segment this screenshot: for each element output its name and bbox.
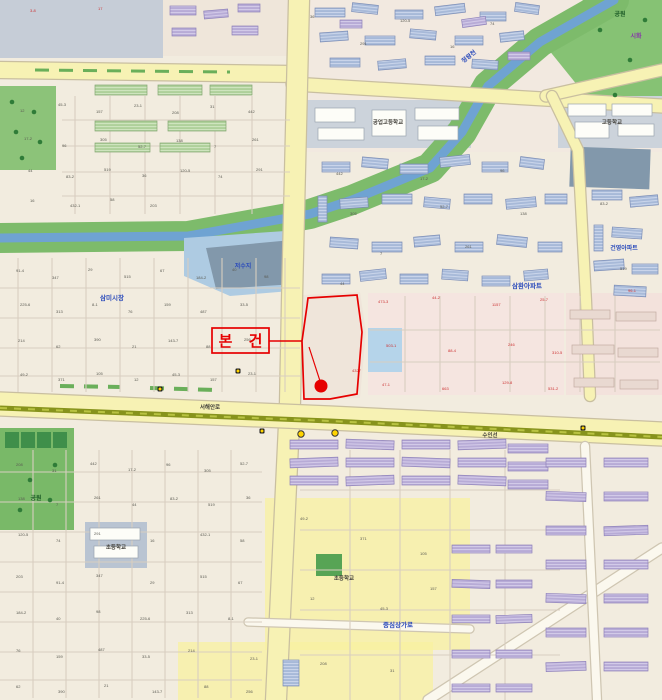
building-p <box>452 615 490 623</box>
place-label: 고등학교 <box>602 118 622 126</box>
parcel-number: 12 <box>134 377 139 382</box>
parcel-number: 225-6 <box>20 302 31 307</box>
parcel-number-red: 17 <box>98 6 103 11</box>
building-b <box>400 164 428 174</box>
parcel-number-red: 4327 <box>352 368 362 373</box>
building-p <box>340 20 362 28</box>
building-p <box>604 492 648 501</box>
tree-icon <box>14 130 19 135</box>
tree-icon <box>10 100 15 105</box>
parcel-number: 88 <box>204 684 209 689</box>
building-p <box>290 457 338 468</box>
parcel-number: 58 <box>110 197 115 202</box>
parcel-number: 12 <box>20 108 25 113</box>
parcel-number: 36 <box>246 495 251 500</box>
parcel-number: 143-7 <box>152 689 163 694</box>
building-w <box>318 128 364 140</box>
parcel-number: 74 <box>218 174 223 179</box>
building-p <box>546 491 586 501</box>
parcel-number: 45-3 <box>172 372 181 377</box>
parcel-number: 390 <box>94 337 101 342</box>
building-p <box>604 594 648 603</box>
parcel-number-red: 473-3 <box>378 299 389 304</box>
parcel-number: 44 <box>340 281 345 286</box>
parcel-number: 442 <box>248 109 255 114</box>
parcel-number: 44 <box>28 168 33 173</box>
building-b <box>382 194 412 204</box>
parcel-number: 143-7 <box>168 338 179 343</box>
parcel-number: 371 <box>360 536 367 541</box>
tree-icon <box>18 508 23 513</box>
parcel-number-red: 531-2 <box>548 386 559 391</box>
parcel-number-red: 96-1 <box>628 288 637 293</box>
building-p <box>496 580 532 588</box>
parcel-number: 83-2 <box>600 201 609 206</box>
parcel-number: 62 <box>56 344 61 349</box>
building-p <box>172 28 196 36</box>
tree-icon <box>628 58 633 63</box>
median-strip <box>60 386 120 387</box>
parcel-number: 74 <box>490 21 495 26</box>
tree-icon <box>613 93 618 98</box>
tree-icon <box>598 28 603 33</box>
parcel-number: 105 <box>96 371 103 376</box>
parcel-number: 120-5 <box>18 532 29 537</box>
parcel-number: 261 <box>94 495 101 500</box>
parcel-number: 49-2 <box>20 372 29 377</box>
parcel-number: 45-3 <box>380 606 389 611</box>
building-p <box>458 475 506 486</box>
building-p <box>496 545 532 553</box>
building-p <box>452 545 490 553</box>
place-label: 초등학교 <box>334 574 354 582</box>
parcel-number: 313 <box>56 309 63 314</box>
building-b <box>365 36 395 45</box>
building-p <box>290 440 338 449</box>
building-b <box>594 225 603 251</box>
parcel-number: 52-7 <box>240 461 249 466</box>
parcel-number: 83-2 <box>66 174 75 179</box>
parcel-number-red: 129-8 <box>502 380 513 385</box>
parcel-number: 519 <box>208 502 215 507</box>
parcel-number: 487 <box>200 309 207 314</box>
parcel-number: 23-1 <box>250 656 259 661</box>
parcel-number: 105 <box>420 551 427 556</box>
building-w <box>315 108 355 122</box>
parcel-number-red: 246 <box>508 342 515 347</box>
building-b <box>318 196 327 222</box>
parcel-number: 487 <box>98 647 105 652</box>
parcel-number: 261 <box>465 244 472 249</box>
building-b <box>632 264 658 274</box>
building-b <box>414 235 441 247</box>
building-p <box>604 560 648 569</box>
building-g <box>95 121 157 131</box>
building-p <box>346 439 394 450</box>
parcel-number: 16 <box>450 44 455 49</box>
place-label: 삼미시장 <box>100 293 124 302</box>
building-p <box>238 4 260 12</box>
parcel-number: 371 <box>58 377 65 382</box>
parcel-number-red: 88-4 <box>448 348 457 353</box>
parcel-number: 16 <box>30 198 35 203</box>
building-p <box>604 662 648 671</box>
parcel-number: 291 <box>94 531 101 536</box>
pool <box>368 328 402 372</box>
parcel-number: 203 <box>16 574 23 579</box>
tree-icon <box>28 478 33 483</box>
parcel-number: 17-2 <box>420 176 429 181</box>
parcel-number-red: 25-7 <box>540 297 549 302</box>
parcel-number: 17-2 <box>128 467 137 472</box>
tennis-court <box>21 432 35 448</box>
traffic-light-icon <box>237 370 240 373</box>
tree-icon <box>53 463 58 468</box>
building-w <box>612 104 652 116</box>
building-g <box>168 121 226 131</box>
building-w <box>418 126 458 140</box>
building-r <box>616 312 656 321</box>
building-p <box>604 525 648 536</box>
building-p <box>458 439 506 450</box>
parcel-number: 208 <box>320 661 327 666</box>
traffic-light-icon <box>159 388 162 391</box>
parcel-number: 214 <box>18 338 25 343</box>
signal-icon <box>332 430 338 436</box>
parcel-number: 31 <box>210 104 215 109</box>
parcel-number: 519 <box>104 167 111 172</box>
building-r <box>572 345 614 354</box>
tennis-court <box>5 432 19 448</box>
building-b <box>330 237 359 249</box>
building-b <box>400 274 428 284</box>
parcel-number: 96 <box>62 143 67 148</box>
parcel-number: 184-2 <box>16 610 27 615</box>
building-p <box>508 480 548 489</box>
parcel-number: 23-1 <box>134 103 143 108</box>
parcel-number: 305 <box>350 211 357 216</box>
building-p <box>452 650 490 658</box>
building-b <box>455 36 483 45</box>
parcel-number: 40 <box>56 616 61 621</box>
parcel-number: 49-2 <box>300 516 309 521</box>
parcel-number-red: 44-2 <box>432 295 441 300</box>
building-b <box>362 157 389 169</box>
parcel-number: 159 <box>164 302 171 307</box>
parcel-number: 138 <box>18 496 25 501</box>
parcel-number: 33-5 <box>240 302 249 307</box>
parcel-number: 29 <box>88 267 93 272</box>
parcel-number: 88 <box>206 344 211 349</box>
building-p <box>508 462 548 471</box>
signal-icon <box>298 431 304 437</box>
building-b <box>330 58 360 67</box>
parcel-number: 52-7 <box>440 204 449 209</box>
building-p <box>604 458 648 467</box>
building-g <box>95 85 147 95</box>
parcel-number: 12 <box>310 596 315 601</box>
parcel-number: 214 <box>188 648 195 653</box>
building-p <box>546 593 586 603</box>
park-left <box>0 86 56 170</box>
building-p <box>346 458 394 467</box>
parcel-number: 256 <box>246 689 253 694</box>
building-b <box>283 660 299 686</box>
building-w <box>618 124 654 136</box>
parcel-number-red: 503-1 <box>386 343 397 348</box>
parcel-number: 432-1 <box>200 532 211 537</box>
building-b <box>315 8 345 17</box>
parcel-number: 157 <box>96 109 103 114</box>
building-p <box>604 628 648 637</box>
building-p <box>346 475 394 486</box>
building-b <box>464 194 492 204</box>
building-p <box>170 6 196 15</box>
place-label: 공원 <box>614 10 625 18</box>
parcel-number: 203 <box>150 203 157 208</box>
tree-icon <box>643 18 648 23</box>
parcel-number: 16 <box>150 538 155 543</box>
parcel-number: 519 <box>620 266 627 271</box>
building-p <box>546 661 586 671</box>
parcel-number: 8-1 <box>92 302 99 307</box>
building-b <box>612 227 643 239</box>
place-label: 중심상가로 <box>383 620 413 629</box>
parcel-number: 515 <box>200 574 207 579</box>
place-label: 건영아파트 <box>610 244 638 252</box>
parcel-number: 29 <box>150 580 155 585</box>
parcel-number: 31 <box>52 468 57 473</box>
building-b <box>506 197 537 210</box>
parcel-number: 91-4 <box>16 268 25 273</box>
parcel-number: 96 <box>500 168 505 173</box>
parcel-number-red: 663 <box>442 386 449 391</box>
parcel-number-red: 1157 <box>492 302 501 307</box>
parcel-number: 291 <box>256 167 263 172</box>
subject-point-marker <box>315 380 328 393</box>
building-p <box>496 614 532 623</box>
building-b <box>524 269 549 281</box>
parcel-number: 21 <box>132 344 137 349</box>
parcel-number-red: 310-5 <box>552 350 563 355</box>
building-p <box>546 628 586 637</box>
building-b <box>538 242 562 252</box>
parcel-number: 313 <box>186 610 193 615</box>
tree-icon <box>20 156 25 161</box>
parcel-number: 36 <box>142 173 147 178</box>
building-b <box>372 242 402 252</box>
parcel-number: 442 <box>90 461 97 466</box>
parcel-number: 45-3 <box>58 102 67 107</box>
subject-block <box>303 292 366 400</box>
parcel-number: 52-7 <box>138 144 147 149</box>
building-b <box>592 190 622 200</box>
traffic-light-icon <box>261 430 264 433</box>
subject-label-text: 본 건 <box>219 333 269 350</box>
building-p <box>546 458 586 467</box>
parcel-number: 67 <box>238 580 243 585</box>
parcel-number-red: 3-8 <box>30 8 37 13</box>
place-label: 서해안로 <box>200 403 220 411</box>
tennis-court <box>53 432 67 448</box>
building-p <box>508 52 530 60</box>
building-p <box>232 26 258 35</box>
building-r <box>620 380 658 389</box>
building-p <box>546 560 586 569</box>
parcel-number: 184-2 <box>196 275 207 280</box>
building-b <box>545 194 567 204</box>
building-p <box>402 440 450 449</box>
building-p <box>496 650 532 658</box>
building-p <box>402 457 450 468</box>
parcel-number: 31 <box>390 668 395 673</box>
building-r <box>570 310 610 319</box>
parcel-number: 23-1 <box>248 371 257 376</box>
parcel-number: 83-2 <box>170 496 179 501</box>
parcel-number: 390 <box>58 689 65 694</box>
parcel-number-red: 47-1 <box>382 382 391 387</box>
building-b <box>320 31 349 42</box>
tree-icon <box>38 140 43 145</box>
parcel-number: 261 <box>252 137 259 142</box>
parcel-number: 347 <box>52 275 59 280</box>
building-g <box>210 85 252 95</box>
parcel-number: 208 <box>172 110 179 115</box>
parcel-number: 76 <box>128 309 133 314</box>
building-g <box>158 85 202 95</box>
building-b <box>630 195 659 207</box>
building-p <box>290 476 338 485</box>
parcel-number: 91-4 <box>56 580 65 585</box>
parcel-number: 347 <box>96 573 103 578</box>
parcel-number: 98 <box>96 609 101 614</box>
building-b <box>482 276 510 286</box>
parcel-number: 225-6 <box>140 616 151 621</box>
building-p <box>402 476 450 485</box>
building-b <box>472 59 499 70</box>
building-r <box>618 348 658 357</box>
parcel-number: 67 <box>160 268 165 273</box>
building-r <box>574 378 614 387</box>
school-field <box>316 554 342 576</box>
parcel-number: 442 <box>336 171 343 176</box>
parcel-number: 58 <box>240 538 245 543</box>
parcel-number: 157 <box>210 377 217 382</box>
parcel-number: 138 <box>520 211 527 216</box>
building-b <box>322 274 350 284</box>
parcel-number: 120-5 <box>400 18 411 23</box>
school-top-left <box>0 0 163 58</box>
parcel-number: 36 <box>310 14 315 19</box>
place-label: 시화 <box>630 32 642 40</box>
building-p <box>458 458 506 467</box>
parcel-number: 62 <box>16 684 21 689</box>
parcel-number: 33-5 <box>142 654 151 659</box>
place-label: 저수지 <box>235 262 252 270</box>
place-label: 삼환아파트 <box>512 281 542 290</box>
parcel-number: 138 <box>176 138 183 143</box>
parcel-number: 17-2 <box>24 136 33 141</box>
parcel-number: 515 <box>124 274 131 279</box>
map-canvas: 1245-315723-12083144217-29630552-7138726… <box>0 0 662 700</box>
tree-icon <box>48 498 53 503</box>
parcel-number: 76 <box>16 648 21 653</box>
parcel-number: 305 <box>204 468 211 473</box>
building-b <box>425 56 455 65</box>
parcel-number: 8-1 <box>228 616 235 621</box>
place-label: 공원 <box>30 494 41 502</box>
building-p <box>204 9 229 19</box>
place-label: 초등학교 <box>106 543 126 551</box>
parcel-number: 96 <box>166 462 171 467</box>
parcel-number: 208 <box>16 462 23 467</box>
parcel-number: 157 <box>430 586 437 591</box>
parcel-number: 21 <box>104 683 109 688</box>
building-p <box>546 526 586 535</box>
parcel-number: 120-5 <box>180 168 191 173</box>
map-screenshot: 1245-315723-12083144217-29630552-7138726… <box>0 0 662 700</box>
building-b <box>442 269 469 281</box>
tennis-court <box>37 432 51 448</box>
parcel-number: 291 <box>360 41 367 46</box>
building-p <box>496 684 532 692</box>
tree-icon <box>32 110 37 115</box>
building-p <box>508 444 548 453</box>
building-p <box>452 684 490 692</box>
building-b <box>340 197 369 209</box>
building-b <box>410 29 437 40</box>
traffic-light-icon <box>582 427 585 430</box>
parcel-number: 432-1 <box>70 203 81 208</box>
yellow-parcels-2 <box>178 642 433 700</box>
parcel-number: 98 <box>264 274 269 279</box>
place-label: 공업고등학교 <box>373 118 403 126</box>
building-w <box>415 108 459 120</box>
place-label: 수인선 <box>482 431 497 439</box>
parcel-number: 44 <box>132 502 137 507</box>
building-p <box>452 579 490 588</box>
parcel-number: 74 <box>56 538 61 543</box>
building-g <box>160 143 210 152</box>
parcel-number: 305 <box>100 137 107 142</box>
parcel-number: 159 <box>56 654 63 659</box>
building-w <box>568 104 606 116</box>
